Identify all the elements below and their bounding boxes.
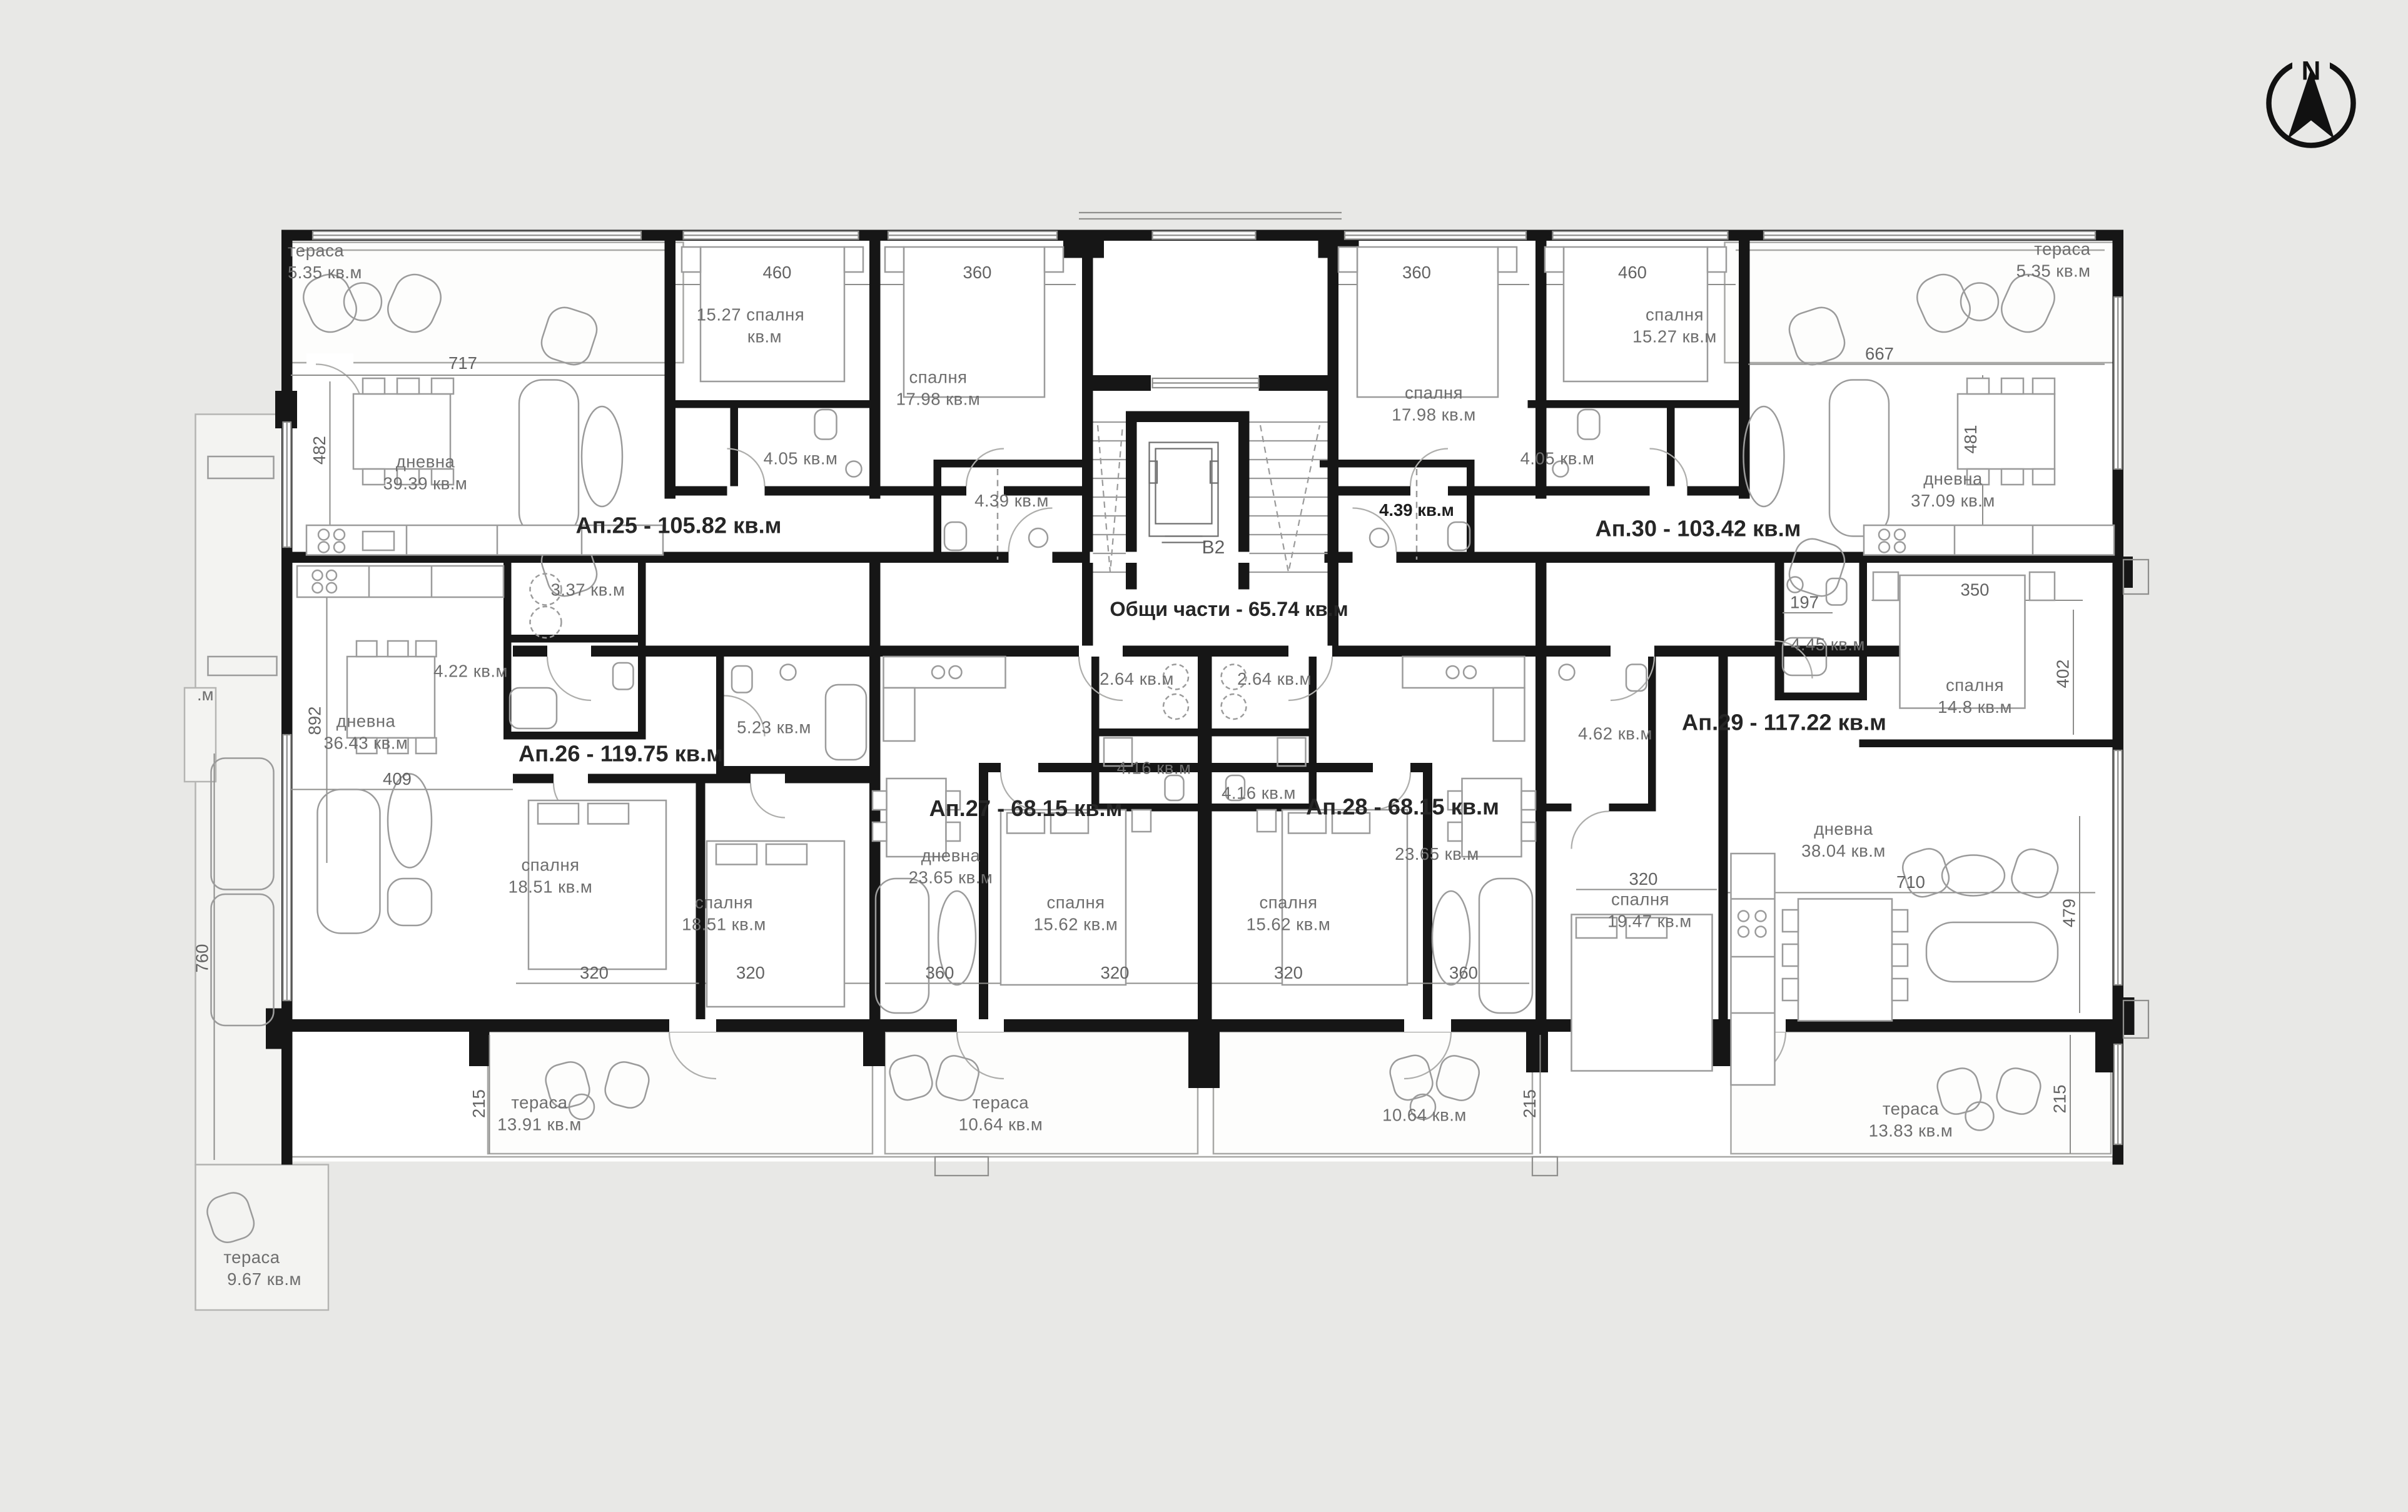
room-label: тераса	[511, 1093, 567, 1112]
floor-plan-page: N Ап.25 - 105.82 кв.мАп.26 - 119.75 кв.м…	[0, 0, 2408, 1512]
dimension-label: 409	[383, 769, 412, 789]
dimension-label: 460	[1618, 263, 1647, 282]
dimension-label: 460	[763, 263, 792, 282]
room-label: 2.64 кв.м	[1100, 669, 1174, 688]
dimension-label: 360	[1402, 263, 1431, 282]
room-label: 19.47 кв.м	[1607, 912, 1692, 931]
room-label: 23.65 кв.м	[1395, 844, 1479, 864]
room-label: тераса	[1883, 1099, 1939, 1119]
room-label: 2.64 кв.м	[1237, 669, 1312, 688]
room-label: спалня	[1405, 383, 1463, 403]
dimension-label: 360	[963, 263, 992, 282]
room-label: 4.16 кв.м	[1222, 784, 1296, 803]
room-label: 13.83 кв.м	[1869, 1121, 1953, 1141]
dimension-label: 667	[1865, 344, 1894, 363]
room-label: дневна	[396, 452, 455, 471]
room-label: тераса	[288, 241, 344, 260]
room-label: 4.05 кв.м	[764, 449, 838, 468]
dimension-label: 482	[310, 436, 329, 465]
dimension-label: 320	[1629, 869, 1658, 889]
room-label: 39.39 кв.м	[383, 474, 468, 493]
dimension-label: 215	[1520, 1089, 1539, 1118]
room-label: 23.65 кв.м	[909, 868, 993, 887]
dimension-label: 360	[926, 963, 954, 982]
room-label: 4.16 кв.м	[1117, 759, 1191, 778]
room-label: 15.27 кв.м	[1632, 327, 1717, 346]
room-label: 36.43 кв.м	[324, 733, 408, 753]
room-label: спалня	[1259, 893, 1317, 912]
room-label: 4.45 кв.м	[1791, 635, 1865, 654]
room-label: тераса	[973, 1093, 1029, 1112]
room-label: 4.62 кв.м	[1578, 724, 1652, 743]
room-label: 13.91 кв.м	[497, 1115, 582, 1134]
dimension-label: 481	[1961, 425, 1980, 454]
room-label: 18.51 кв.м	[508, 877, 593, 897]
room-label: 15.62 кв.м	[1247, 915, 1331, 934]
apartment-label: Ап.28 - 68.15 кв.м	[1306, 794, 1499, 820]
room-label: 15.27 спалня	[697, 305, 805, 325]
apartment-label: Ап.26 - 119.75 кв.м	[519, 741, 723, 767]
room-label: кв.м	[747, 327, 782, 346]
room-label: 10.64 кв.м	[1382, 1106, 1467, 1125]
room-label: дневна	[336, 712, 396, 731]
room-label: тераса	[223, 1247, 280, 1267]
room-label: 37.09 кв.м	[1911, 491, 1995, 510]
dimension-label: 717	[448, 353, 477, 373]
room-label: 3.37 кв.м	[551, 580, 625, 600]
room-label: 4.05 кв.м	[1520, 449, 1595, 468]
dimension-label: 350	[1961, 580, 1990, 600]
room-label: спалня	[1046, 893, 1105, 912]
dimension-label: 760	[193, 944, 212, 973]
room-label: 38.04 кв.м	[1801, 841, 1886, 860]
room-label: 4.39 кв.м	[974, 491, 1049, 510]
room-label: 10.64 кв.м	[959, 1115, 1043, 1134]
floor-plan-drawing: N Ап.25 - 105.82 кв.мАп.26 - 119.75 кв.м…	[0, 0, 2408, 1512]
room-label: спалня	[909, 368, 967, 387]
room-label: 5.35 кв.м	[2016, 261, 2091, 281]
room-label: 9.67 кв.м	[227, 1269, 301, 1289]
room-label: 15.62 кв.м	[1034, 915, 1118, 934]
dimension-label: 320	[580, 963, 609, 982]
dimension-label: 360	[1449, 963, 1478, 982]
dimension-label: 320	[1101, 963, 1130, 982]
dimension-label: 197	[1790, 593, 1819, 612]
apartment-label: Ап.30 - 103.42 кв.м	[1596, 516, 1801, 542]
dimension-label: 215	[2050, 1085, 2070, 1114]
room-label: спалня	[695, 893, 753, 912]
dimension-label: 402	[2053, 660, 2073, 688]
room-label: 4.39 кв.м	[1379, 500, 1454, 520]
room-label: спалня	[521, 855, 579, 875]
dimension-label: 710	[1896, 872, 1925, 892]
room-label: дневна	[1814, 819, 1873, 839]
dimension-label: 892	[305, 707, 325, 735]
dimension-label: 320	[1274, 963, 1303, 982]
dimension-label: 479	[2060, 899, 2079, 927]
room-label: 14.8 кв.м	[1938, 697, 2012, 717]
apartment-label: Ап.25 - 105.82 кв.м	[576, 513, 782, 538]
common-areas-label: Общи части - 65.74 кв.м	[1110, 598, 1348, 620]
room-label: 18.51 кв.м	[682, 915, 766, 934]
dimension-label: 215	[469, 1089, 488, 1118]
room-label: дневна	[921, 846, 981, 865]
apartment-label: Ап.29 - 117.22 кв.м	[1682, 710, 1886, 735]
room-label: 17.98 кв.м	[1392, 405, 1476, 425]
apartment-label: Ап.27 - 68.15 кв.м	[929, 795, 1123, 821]
room-label: 5.35 кв.м	[288, 263, 362, 282]
room-label: 17.98 кв.м	[896, 390, 981, 409]
room-label: спалня	[1611, 890, 1669, 909]
room-label: спалня	[1946, 675, 2004, 695]
room-label: 4.22 кв.м	[433, 662, 508, 681]
room-label: тераса	[2034, 239, 2090, 259]
room-label: дневна	[1923, 469, 1983, 488]
room-label: 5.23 кв.м	[737, 718, 811, 737]
core-label: B2	[1202, 537, 1225, 558]
label-fragment: .м	[197, 685, 214, 704]
room-label: спалня	[1646, 305, 1704, 325]
dimension-label: 320	[736, 963, 765, 982]
